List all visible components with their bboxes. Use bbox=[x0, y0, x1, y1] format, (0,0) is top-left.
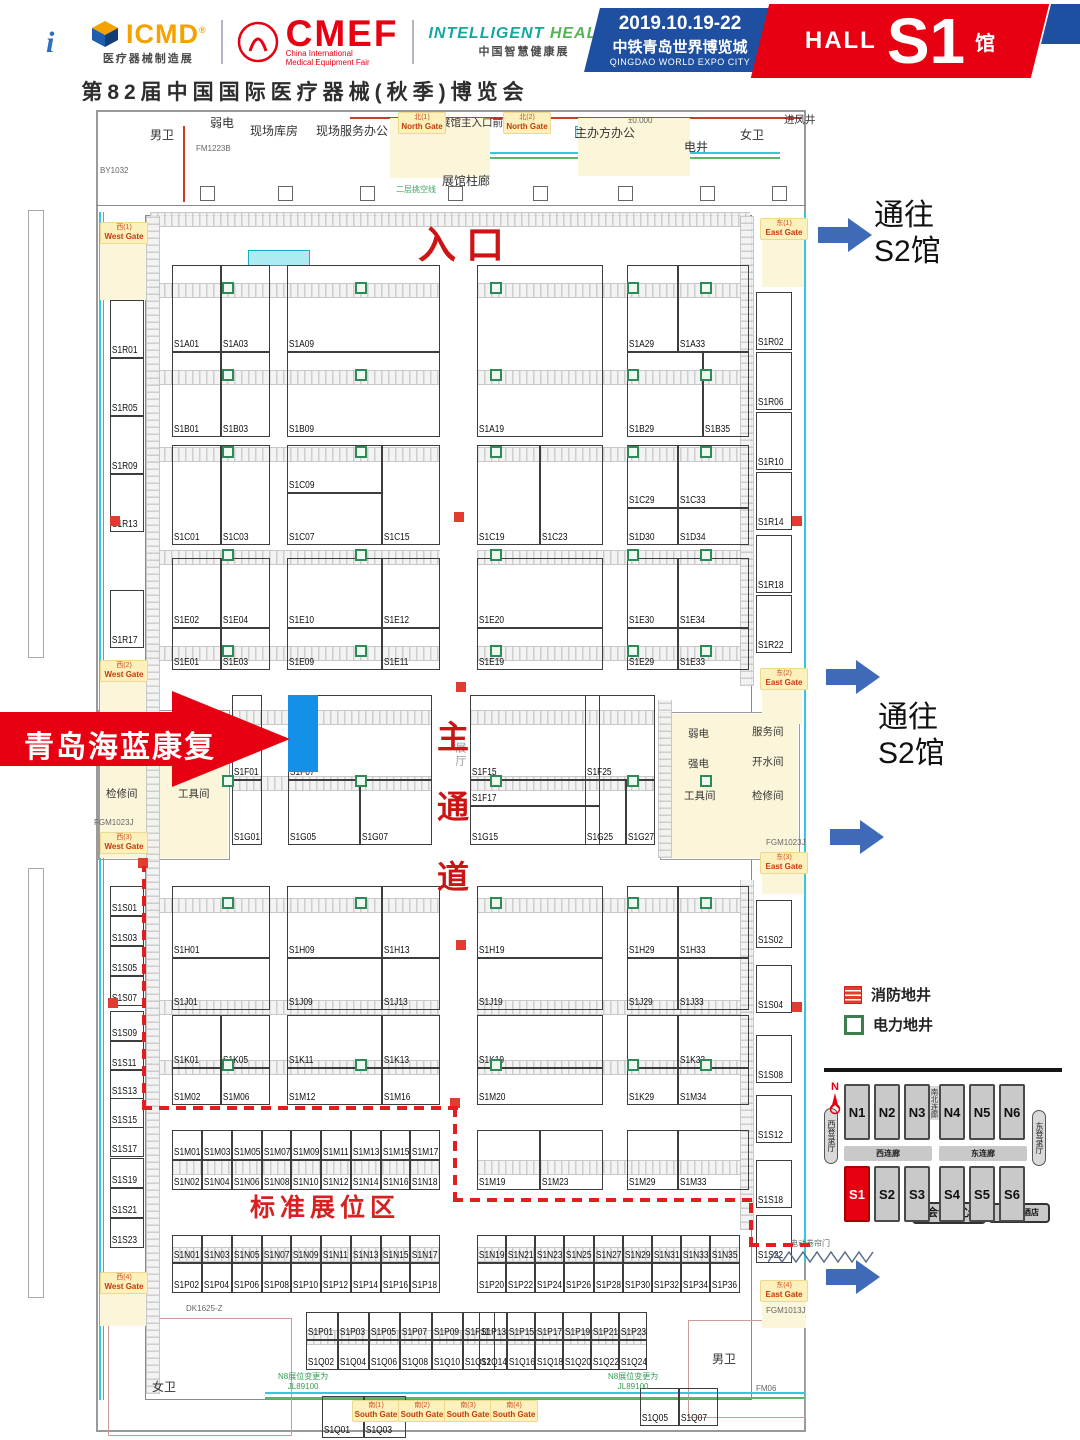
gate-name: South Gate bbox=[445, 1410, 491, 1420]
booth-s1b29: S1B29 bbox=[627, 352, 703, 437]
booth-label: S1R05 bbox=[111, 404, 138, 415]
booth-s1p17: S1P17 bbox=[535, 1312, 563, 1340]
booth-s1n08: S1N08 bbox=[262, 1160, 291, 1190]
booth-label: S1Q20 bbox=[564, 1358, 591, 1369]
booth-label: S1J01 bbox=[173, 998, 198, 1009]
fire-well-icon bbox=[454, 512, 464, 522]
gate-number: 西(3) bbox=[101, 834, 147, 842]
power-well-icon bbox=[700, 1059, 712, 1071]
booth-s1k11: S1K11 bbox=[287, 1015, 382, 1068]
gate-number: 东(3) bbox=[761, 854, 807, 862]
booth-s1e33: S1E33 bbox=[678, 628, 749, 670]
to-s2-arrow-icon bbox=[818, 216, 872, 254]
booth-s1n35: S1N35 bbox=[710, 1235, 740, 1263]
booth-s1p26: S1P26 bbox=[564, 1263, 594, 1293]
booth-s1p12: S1P12 bbox=[321, 1263, 351, 1293]
booth-s1s01: S1S01 bbox=[110, 886, 144, 916]
booth-s1s21: S1S21 bbox=[110, 1188, 144, 1218]
booth-s1n17: S1N17 bbox=[410, 1235, 440, 1263]
wall-line-cyan bbox=[804, 212, 806, 1262]
booth-s1c07: S1C07 bbox=[287, 493, 382, 545]
gate-number: 东(4) bbox=[761, 1282, 807, 1290]
gate-west-gate: 西(4)West Gate bbox=[100, 1272, 148, 1294]
power-well-icon bbox=[627, 897, 639, 909]
room-label: 现场服务办公 bbox=[316, 122, 388, 139]
booth-s1m16: S1M16 bbox=[382, 1068, 440, 1105]
booth-label: S1S04 bbox=[757, 1001, 783, 1012]
booth-s1n05: S1N05 bbox=[232, 1235, 262, 1263]
booth-label: S1N31 bbox=[653, 1251, 680, 1262]
booth-label: S1M16 bbox=[383, 1093, 410, 1104]
fire-well-icon bbox=[108, 998, 118, 1008]
booth-s1m03: S1M03 bbox=[202, 1130, 232, 1160]
minimap-hall-s3: S3 bbox=[904, 1166, 930, 1222]
booth-s1e04: S1E04 bbox=[221, 558, 270, 628]
room-label: 强电 bbox=[688, 756, 709, 771]
booth-label: S1D30 bbox=[628, 533, 655, 544]
gate-number: 东(1) bbox=[761, 220, 807, 228]
booth-label: S1C01 bbox=[173, 533, 200, 544]
booth-label: S1P19 bbox=[564, 1328, 590, 1339]
booth-label: S1P01 bbox=[307, 1328, 333, 1339]
booth-s1q06: S1Q06 bbox=[369, 1340, 400, 1370]
booth-s1q22: S1Q22 bbox=[591, 1340, 619, 1370]
minimap-hall-n4: N4 bbox=[939, 1084, 965, 1140]
booth-label: S1P20 bbox=[478, 1281, 504, 1292]
gate-south-gate: 南(1)South Gate bbox=[352, 1400, 400, 1422]
booth-label: S1P09 bbox=[433, 1328, 459, 1339]
main-aisle-label: 主 通 道 bbox=[436, 702, 470, 912]
booth-label: S1N17 bbox=[411, 1251, 438, 1262]
room-label: 检修间 bbox=[752, 788, 784, 803]
booth-label: S1H01 bbox=[173, 946, 200, 957]
booth-label: S1P16 bbox=[382, 1281, 408, 1292]
booth-label: S1M19 bbox=[478, 1178, 505, 1189]
room-label: FGM1023J bbox=[766, 838, 806, 847]
booth-s1n11: S1N11 bbox=[321, 1235, 351, 1263]
booth-label: S1M13 bbox=[352, 1148, 379, 1159]
booth-s1p07: S1P07 bbox=[400, 1312, 432, 1340]
booth-label: S1R14 bbox=[757, 518, 784, 529]
booth-label: S1P07 bbox=[401, 1328, 427, 1339]
power-well-icon bbox=[627, 282, 639, 294]
gate-name: East Gate bbox=[761, 1290, 807, 1300]
room-label: 电井 bbox=[684, 138, 708, 155]
booth-s1q20: S1Q20 bbox=[563, 1340, 591, 1370]
booth-label: S1P10 bbox=[292, 1281, 318, 1292]
room-label: DK1625-Z bbox=[186, 1304, 222, 1313]
booth-s1a01: S1A01 bbox=[172, 265, 221, 352]
standard-booth-area-label: 标准展位区 bbox=[250, 1188, 400, 1224]
gate-name: East Gate bbox=[761, 678, 807, 688]
booth-s1d30: S1D30 bbox=[627, 508, 678, 545]
booth-label: S1N35 bbox=[711, 1251, 738, 1262]
booth-label: S1H19 bbox=[478, 946, 505, 957]
restroom-block-sw bbox=[108, 1318, 292, 1436]
gate-east-gate: 东(2)East Gate bbox=[760, 668, 808, 690]
booth-s1q14: S1Q14 bbox=[479, 1340, 507, 1370]
booth-s1j09: S1J09 bbox=[287, 958, 382, 1010]
booth-label: S1B01 bbox=[173, 425, 199, 436]
booth-s1p23: S1P23 bbox=[619, 1312, 647, 1340]
booth-s1s13: S1S13 bbox=[110, 1069, 144, 1099]
booth-s1p02: S1P02 bbox=[172, 1263, 202, 1293]
booth-label: S1E20 bbox=[478, 616, 504, 627]
power-well-icon bbox=[627, 775, 639, 787]
power-well-icon bbox=[700, 549, 712, 561]
power-well-icon bbox=[355, 1059, 367, 1071]
booth-s1h01: S1H01 bbox=[172, 886, 270, 958]
booth-label: S1P17 bbox=[536, 1328, 562, 1339]
room-label: 展馆柱廊 bbox=[442, 172, 490, 189]
power-well-icon bbox=[355, 897, 367, 909]
booth-label: S1C29 bbox=[628, 496, 655, 507]
booth-label: S1P21 bbox=[592, 1328, 618, 1339]
booth-s1n29: S1N29 bbox=[623, 1235, 652, 1263]
power-well-icon bbox=[700, 446, 712, 458]
booth-s1g27: S1G27 bbox=[626, 780, 655, 845]
booth-label: S1Q08 bbox=[401, 1358, 428, 1369]
gate-west-gate: 西(2)West Gate bbox=[100, 660, 148, 682]
booth-label: S1N05 bbox=[233, 1251, 260, 1262]
power-well-icon bbox=[222, 645, 234, 657]
booth-label: S1S01 bbox=[111, 904, 137, 915]
power-well-icon bbox=[627, 645, 639, 657]
gate-east-gate: 东(4)East Gate bbox=[760, 1280, 808, 1302]
power-well-icon bbox=[627, 549, 639, 561]
booth-label: S1N15 bbox=[382, 1251, 409, 1262]
minimap-hall-n6: N6 bbox=[999, 1084, 1025, 1140]
booth-s1n19: S1N19 bbox=[477, 1235, 506, 1263]
booth-label: S1E12 bbox=[383, 616, 409, 627]
booth-s1m12: S1M12 bbox=[287, 1068, 382, 1105]
room-label: 现场库房 bbox=[250, 122, 298, 139]
cyan-box bbox=[248, 250, 310, 266]
booth-label: S1M34 bbox=[679, 1093, 706, 1104]
booth-label: S1M05 bbox=[233, 1148, 260, 1159]
booth-label: S1J29 bbox=[628, 998, 653, 1009]
booth-s1a03: S1A03 bbox=[221, 265, 270, 352]
power-well-icon bbox=[490, 369, 502, 381]
booth-s1m11: S1M11 bbox=[321, 1130, 351, 1160]
booth-label: S1A09 bbox=[288, 340, 314, 351]
booth-s1g05: S1G05 bbox=[288, 780, 360, 845]
booth-s1p16: S1P16 bbox=[381, 1263, 410, 1293]
booth-s1e20: S1E20 bbox=[477, 558, 603, 628]
booth-label: S1M02 bbox=[173, 1093, 200, 1104]
booth-s1n02: S1N02 bbox=[172, 1160, 202, 1190]
booth-s1p30: S1P30 bbox=[623, 1263, 652, 1293]
power-well-icon bbox=[490, 645, 502, 657]
booth-s1e10: S1E10 bbox=[287, 558, 382, 628]
booth-s1m06: S1M06 bbox=[221, 1068, 270, 1105]
booth-label: S1G01 bbox=[233, 833, 260, 844]
room-label: FM06 bbox=[756, 1384, 776, 1393]
booth-label: S1H33 bbox=[679, 946, 706, 957]
booth-s1m15: S1M15 bbox=[381, 1130, 410, 1160]
booth-s1s05: S1S05 bbox=[110, 946, 144, 976]
booth-label: S1N04 bbox=[203, 1178, 230, 1189]
booth-label: S1Q05 bbox=[641, 1414, 668, 1425]
booth-label: S1S23 bbox=[111, 1236, 137, 1247]
booth-s1g07: S1G07 bbox=[360, 780, 432, 845]
booth-label: S1R18 bbox=[757, 581, 784, 592]
minimap-hall-s1: S1 bbox=[844, 1166, 870, 1222]
gate-name: North Gate bbox=[399, 122, 445, 132]
room-label: ±0.000 bbox=[628, 116, 652, 125]
booth-s1p20: S1P20 bbox=[477, 1263, 506, 1293]
booth-label: S1A03 bbox=[222, 340, 248, 351]
room-label: FM1223B bbox=[196, 144, 231, 153]
room-label: 主办方办公 bbox=[575, 124, 635, 141]
booth-s1k33: S1K33 bbox=[678, 1015, 749, 1068]
booth-label: S1N21 bbox=[507, 1251, 534, 1262]
booth-label: S1P22 bbox=[507, 1281, 533, 1292]
booth-label: S1P12 bbox=[322, 1281, 348, 1292]
power-well-icon bbox=[222, 897, 234, 909]
booth-s1c33: S1C33 bbox=[678, 445, 749, 508]
fire-well-icon bbox=[456, 940, 466, 950]
booth-s1s18: S1S18 bbox=[756, 1160, 792, 1208]
route-dashed-line bbox=[749, 1198, 753, 1247]
booth-label: S1S08 bbox=[757, 1071, 783, 1082]
booth-s1r02: S1R02 bbox=[756, 292, 792, 350]
gate-west-gate: 西(3)West Gate bbox=[100, 832, 148, 854]
power-well-icon bbox=[844, 1015, 864, 1035]
booth-label: S1E09 bbox=[288, 658, 314, 669]
booth-s1p36: S1P36 bbox=[710, 1263, 740, 1293]
booth-s1n06: S1N06 bbox=[232, 1160, 262, 1190]
booth-s1s03: S1S03 bbox=[110, 916, 144, 946]
room-label: 二层挑空线 bbox=[396, 184, 436, 195]
booth-label: S1S17 bbox=[111, 1145, 137, 1156]
booth-s1c19: S1C19 bbox=[477, 445, 540, 545]
booth-s1c09: S1C09 bbox=[287, 445, 382, 493]
booth-label: S1P02 bbox=[173, 1281, 199, 1292]
walkway-vertical bbox=[658, 700, 672, 858]
red-wall-line bbox=[183, 126, 185, 202]
booth-label: S1M01 bbox=[173, 1148, 200, 1159]
west-corridor: 西连廊 bbox=[844, 1146, 932, 1161]
booth-s1q05: S1Q05 bbox=[640, 1388, 679, 1426]
booth-s1b01: S1B01 bbox=[172, 352, 221, 437]
power-well-icon bbox=[490, 1059, 502, 1071]
booth-s1e02: S1E02 bbox=[172, 558, 221, 628]
column bbox=[618, 186, 633, 201]
booth-s1n04: S1N04 bbox=[202, 1160, 232, 1190]
booth-label: S1N09 bbox=[292, 1251, 319, 1262]
booth-label: S1G15 bbox=[471, 833, 498, 844]
booth-s1q08: S1Q08 bbox=[400, 1340, 432, 1370]
booth-s1m01: S1M01 bbox=[172, 1130, 202, 1160]
gate-number: 西(1) bbox=[101, 224, 147, 232]
booth-label: S1P03 bbox=[339, 1328, 365, 1339]
booth-label: S1N13 bbox=[352, 1251, 379, 1262]
booth-label: S1P18 bbox=[411, 1281, 437, 1292]
room-label: 开水间 bbox=[752, 754, 784, 769]
booth-label: S1M07 bbox=[263, 1148, 290, 1159]
booth-label: S1J13 bbox=[383, 998, 408, 1009]
room-label: 工具间 bbox=[178, 786, 210, 801]
booth-label: S1Q01 bbox=[323, 1426, 350, 1437]
gate-name: South Gate bbox=[399, 1410, 445, 1420]
booth-label: S1R09 bbox=[111, 462, 138, 473]
booth-label: S1Q03 bbox=[365, 1426, 392, 1437]
booth-label: S1C09 bbox=[288, 481, 315, 492]
route-dashed-line bbox=[453, 1198, 753, 1202]
booth-label: S1J09 bbox=[288, 998, 313, 1009]
booth-s1s12: S1S12 bbox=[756, 1095, 792, 1143]
minimap-hall-s4: S4 bbox=[939, 1166, 965, 1222]
booth-label: S1Q06 bbox=[370, 1358, 397, 1369]
gate-number: 南(2) bbox=[399, 1402, 445, 1410]
power-well-icon bbox=[700, 369, 712, 381]
booth-s1n16: S1N16 bbox=[381, 1160, 410, 1190]
floor-plan: 青岛海蓝康复 入口 主 通 道 标准展位区 通往 S2馆 通往 S2馆 消防地井… bbox=[0, 0, 1080, 1440]
route-dashed-line bbox=[749, 1243, 813, 1247]
booth-s1g25: S1G25 bbox=[585, 780, 626, 845]
booth-label: S1P32 bbox=[653, 1281, 679, 1292]
power-well-icon bbox=[222, 282, 234, 294]
booth-label: S1H29 bbox=[628, 946, 655, 957]
booth-s1e01: S1E01 bbox=[172, 628, 221, 670]
booth-label: S1N19 bbox=[478, 1251, 505, 1262]
booth-s1q02: S1Q02 bbox=[306, 1340, 338, 1370]
booth-s1p10: S1P10 bbox=[291, 1263, 321, 1293]
gate-name: East Gate bbox=[761, 862, 807, 872]
west-annex bbox=[28, 868, 44, 1298]
booth-s1n31: S1N31 bbox=[652, 1235, 681, 1263]
booth-label: S1P23 bbox=[620, 1328, 646, 1339]
gate-north-gate: 北(2)North Gate bbox=[503, 112, 551, 134]
booth-s1h13: S1H13 bbox=[382, 886, 440, 958]
booth-label: S1S12 bbox=[757, 1131, 783, 1142]
booth-label: S1A19 bbox=[478, 425, 504, 436]
booth-s1m23: S1M23 bbox=[540, 1130, 603, 1190]
booth-s1b35: S1B35 bbox=[703, 352, 749, 437]
yellow-area bbox=[762, 232, 804, 287]
fire-well-icon bbox=[110, 516, 120, 526]
booth-s1n15: S1N15 bbox=[381, 1235, 410, 1263]
booth-label: S1B35 bbox=[704, 425, 730, 436]
booth-label: S1M06 bbox=[222, 1093, 249, 1104]
booth-s1r10: S1R10 bbox=[756, 412, 792, 470]
booth-s1j19: S1J19 bbox=[477, 958, 603, 1010]
gate-number: 西(2) bbox=[101, 662, 147, 670]
booth-s1j01: S1J01 bbox=[172, 958, 270, 1010]
room-label: 弱电 bbox=[688, 726, 709, 741]
booth-s1m19: S1M19 bbox=[477, 1130, 540, 1190]
booth-s1p14: S1P14 bbox=[351, 1263, 381, 1293]
power-well-icon bbox=[490, 549, 502, 561]
booth-s1d34: S1D34 bbox=[678, 508, 749, 545]
room-label: FGM1023J bbox=[94, 818, 134, 827]
booth-label: S1E33 bbox=[679, 658, 705, 669]
booth-s1q18: S1Q18 bbox=[535, 1340, 563, 1370]
booth-s1n33: S1N33 bbox=[681, 1235, 710, 1263]
booth-s1p13: S1P13 bbox=[479, 1312, 507, 1340]
booth-s1r14: S1R14 bbox=[756, 472, 792, 530]
venue-minimap: N 南北连廊 西连廊 东连廊 西登录厅 东登录厅 会议中心 威斯汀酒店 N1N2… bbox=[824, 1076, 1064, 1231]
legend-fire-well: 消防地井 bbox=[844, 984, 931, 1005]
booth-s1r09: S1R09 bbox=[110, 416, 144, 474]
power-well-icon bbox=[222, 369, 234, 381]
booth-s1n27: S1N27 bbox=[594, 1235, 623, 1263]
power-well-icon bbox=[355, 645, 367, 657]
power-well-icon bbox=[700, 775, 712, 787]
booth-s1q24: S1Q24 bbox=[619, 1340, 647, 1370]
power-well-icon bbox=[355, 549, 367, 561]
booth-label: S1C19 bbox=[478, 533, 505, 544]
booth-s1m33: S1M33 bbox=[678, 1130, 749, 1190]
booth-label: S1N27 bbox=[595, 1251, 622, 1262]
room-label: 男卫 bbox=[150, 126, 174, 143]
gate-east-gate: 东(3)East Gate bbox=[760, 852, 808, 874]
booth-label: S1P06 bbox=[233, 1281, 259, 1292]
booth-label: S1R10 bbox=[757, 458, 784, 469]
booth-label: S1A01 bbox=[173, 340, 199, 351]
power-well-icon bbox=[627, 446, 639, 458]
booth-label: S1R06 bbox=[757, 398, 784, 409]
booth-label: S1F17 bbox=[471, 794, 497, 805]
booth-label: S1E29 bbox=[628, 658, 654, 669]
gate-name: South Gate bbox=[353, 1410, 399, 1420]
booth-label: S1E01 bbox=[173, 658, 199, 669]
entrance-label: 入口 bbox=[418, 214, 514, 269]
highlighted-booth bbox=[288, 695, 318, 772]
room-label: 弱电 bbox=[210, 114, 234, 131]
booth-label: S1Q04 bbox=[339, 1358, 366, 1369]
gate-name: West Gate bbox=[101, 1282, 147, 1292]
booth-label: S1N01 bbox=[173, 1251, 200, 1262]
booth-s1h33: S1H33 bbox=[678, 886, 749, 958]
callout-exhibitor-name: 青岛海蓝康复 bbox=[24, 722, 216, 766]
booth-label: S1E19 bbox=[478, 658, 504, 669]
booth-label: S1N11 bbox=[322, 1251, 348, 1262]
booth-s1p03: S1P03 bbox=[338, 1312, 369, 1340]
booth-s1r01: S1R01 bbox=[110, 300, 144, 358]
booth-s1q04: S1Q04 bbox=[338, 1340, 369, 1370]
booth-s1s04: S1S04 bbox=[756, 965, 792, 1013]
power-well-icon bbox=[222, 446, 234, 458]
booth-label: S1Q22 bbox=[592, 1358, 619, 1369]
booth-s1k01: S1K01 bbox=[172, 1015, 221, 1068]
booth-s1p19: S1P19 bbox=[563, 1312, 591, 1340]
booth-s1c03: S1C03 bbox=[221, 445, 270, 545]
booth-s1s09: S1S09 bbox=[110, 1011, 144, 1041]
fire-well-icon bbox=[844, 986, 862, 1004]
booth-s1p01: S1P01 bbox=[306, 1312, 338, 1340]
booth-label: S1E11 bbox=[383, 658, 408, 669]
booth-s1s11: S1S11 bbox=[110, 1041, 144, 1071]
booth-label: S1E04 bbox=[222, 616, 248, 627]
power-well-icon bbox=[627, 1059, 639, 1071]
to-s2-arrow-icon bbox=[830, 818, 884, 856]
booth-s1p18: S1P18 bbox=[410, 1263, 440, 1293]
booth-label: S1H09 bbox=[288, 946, 315, 957]
booth-label: S1M23 bbox=[541, 1178, 568, 1189]
booth-label: S1N23 bbox=[536, 1251, 563, 1262]
booth-s1r06: S1R06 bbox=[756, 352, 792, 410]
booth-s1q16: S1Q16 bbox=[507, 1340, 535, 1370]
booth-label: S1G05 bbox=[289, 833, 316, 844]
booth-label: S1E03 bbox=[222, 658, 248, 669]
fire-well-icon bbox=[792, 1002, 802, 1012]
gate-number: 北(2) bbox=[504, 114, 550, 122]
booth-label: S1C07 bbox=[288, 533, 315, 544]
booth-label: S1E30 bbox=[628, 616, 654, 627]
gate-name: West Gate bbox=[101, 232, 147, 242]
